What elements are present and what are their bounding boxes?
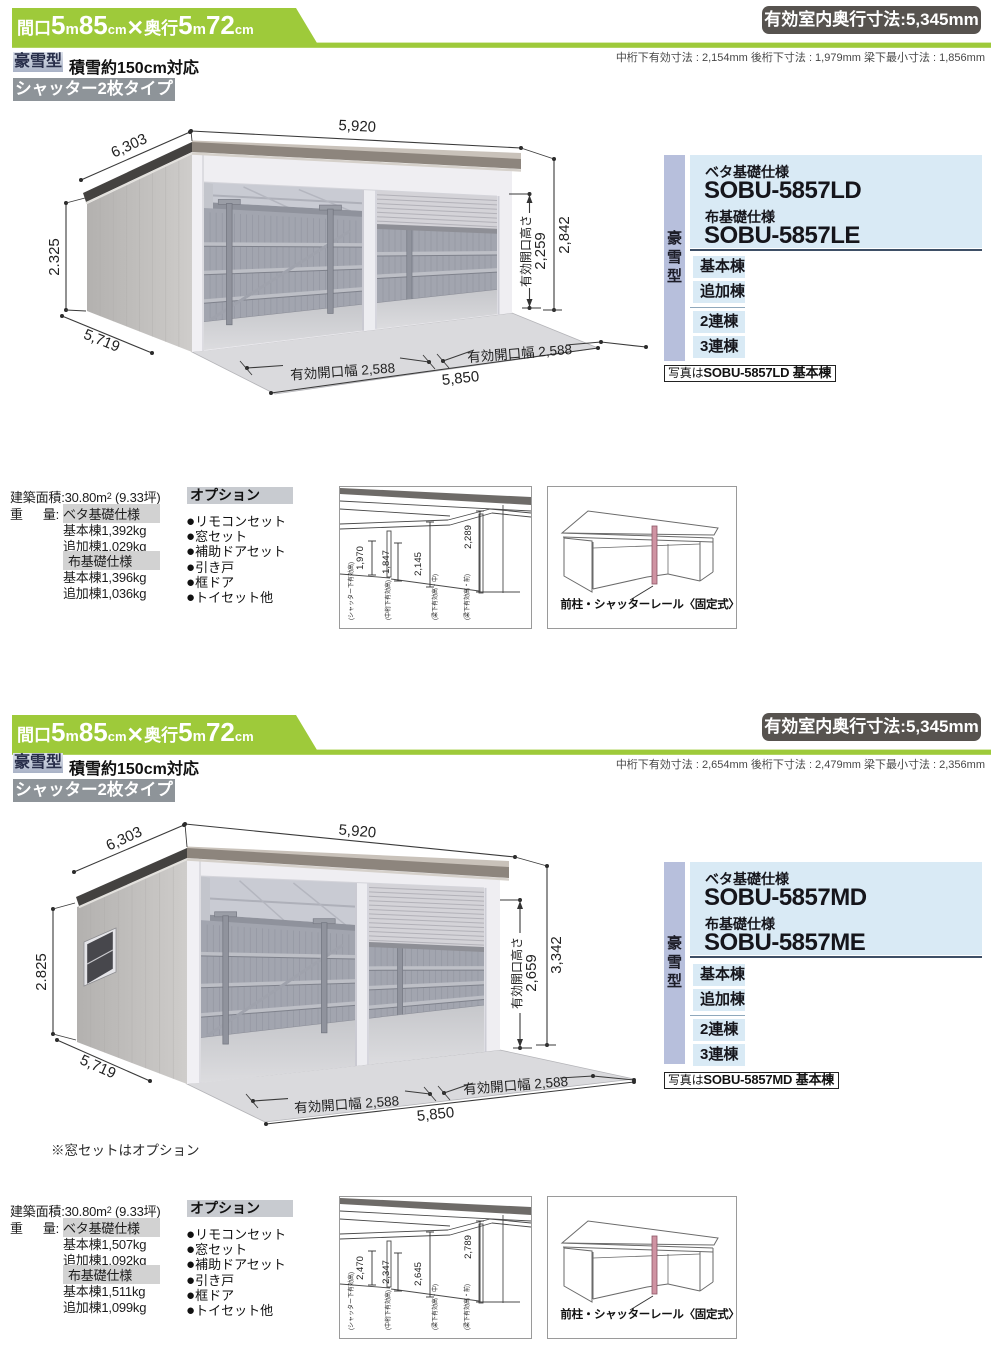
svg-text:5,920: 5,920 [338,821,377,841]
svg-text:2,659: 2,659 [523,954,540,992]
svg-text:2,259: 2,259 [532,232,549,270]
svg-text:有効開口高さ: 有効開口高さ [509,937,524,1009]
svg-text:2,347: 2,347 [381,1260,392,1284]
svg-text:前柱・シャッターレール〈固定式〉: 前柱・シャッターレール〈固定式〉 [560,597,737,611]
svg-text:1,847: 1,847 [381,550,392,574]
svg-text:2,645: 2,645 [413,1262,424,1286]
svg-text:有効開口高さ: 有効開口高さ [518,215,533,287]
svg-text:5,719: 5,719 [81,326,122,356]
svg-text:(梁下有効高・中): (梁下有効高・中) [431,1284,439,1330]
svg-text:(梁下有効高・中): (梁下有効高・中) [431,574,439,620]
svg-text:2,145: 2,145 [413,552,424,576]
svg-text:2.825: 2.825 [33,953,50,991]
svg-text:6,303: 6,303 [104,823,145,854]
svg-text:前柱・シャッターレール〈固定式〉: 前柱・シャッターレール〈固定式〉 [560,1307,737,1321]
svg-text:2,470: 2,470 [355,1256,366,1280]
svg-text:6,303: 6,303 [109,130,150,161]
svg-text:(梁下有効高・前): (梁下有効高・前) [463,574,471,620]
svg-text:5,850: 5,850 [441,368,480,389]
svg-text:1,970: 1,970 [355,546,366,570]
svg-text:5,719: 5,719 [77,1051,118,1082]
svg-text:(中桁下有効高): (中桁下有効高) [384,1290,392,1330]
svg-text:(中桁下有効高): (中桁下有効高) [384,580,392,620]
svg-text:(梁下有効高・前): (梁下有効高・前) [463,1284,471,1330]
svg-text:5,920: 5,920 [338,117,376,136]
svg-text:(シャッター下有効高): (シャッター下有効高) [347,562,355,620]
svg-text:2,289: 2,289 [463,525,474,549]
svg-text:(シャッター下有効高): (シャッター下有効高) [347,1272,355,1330]
svg-text:2,842: 2,842 [556,216,573,254]
svg-text:5,850: 5,850 [416,1104,455,1125]
svg-text:3,342: 3,342 [548,936,565,974]
svg-text:2.325: 2.325 [46,238,63,276]
svg-text:2,789: 2,789 [463,1235,474,1259]
